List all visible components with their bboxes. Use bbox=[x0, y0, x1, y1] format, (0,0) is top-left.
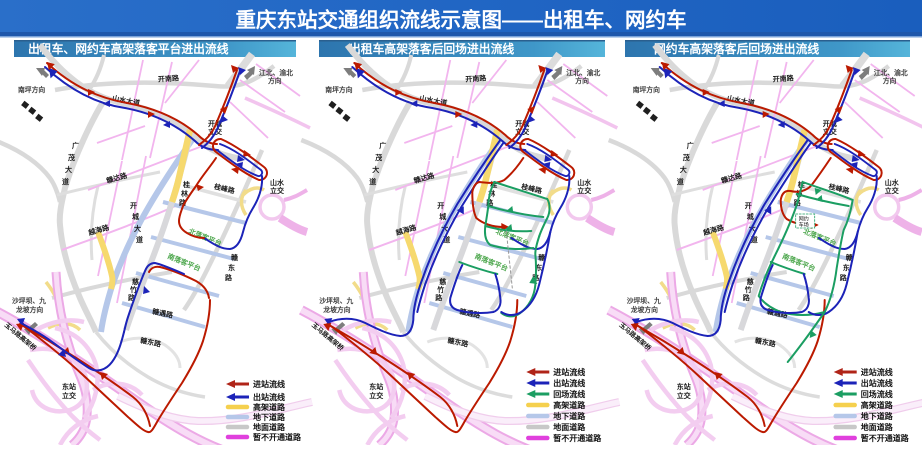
svg-text:出租车、网约车高架落客平台进出流线: 出租车、网约车高架落客平台进出流线 bbox=[28, 42, 229, 56]
svg-text:车场: 车场 bbox=[799, 222, 809, 229]
svg-text:出租车高架落客后回场进出流线: 出租车高架落客后回场进出流线 bbox=[349, 42, 514, 56]
svg-text:网约: 网约 bbox=[799, 216, 809, 223]
svg-text:网约车高架落客后回场进出流线: 网约车高架落客后回场进出流线 bbox=[654, 42, 819, 56]
svg-text:重庆东站交通组织流线示意图——出租车、网约车: 重庆东站交通组织流线示意图——出租车、网约车 bbox=[236, 8, 687, 32]
